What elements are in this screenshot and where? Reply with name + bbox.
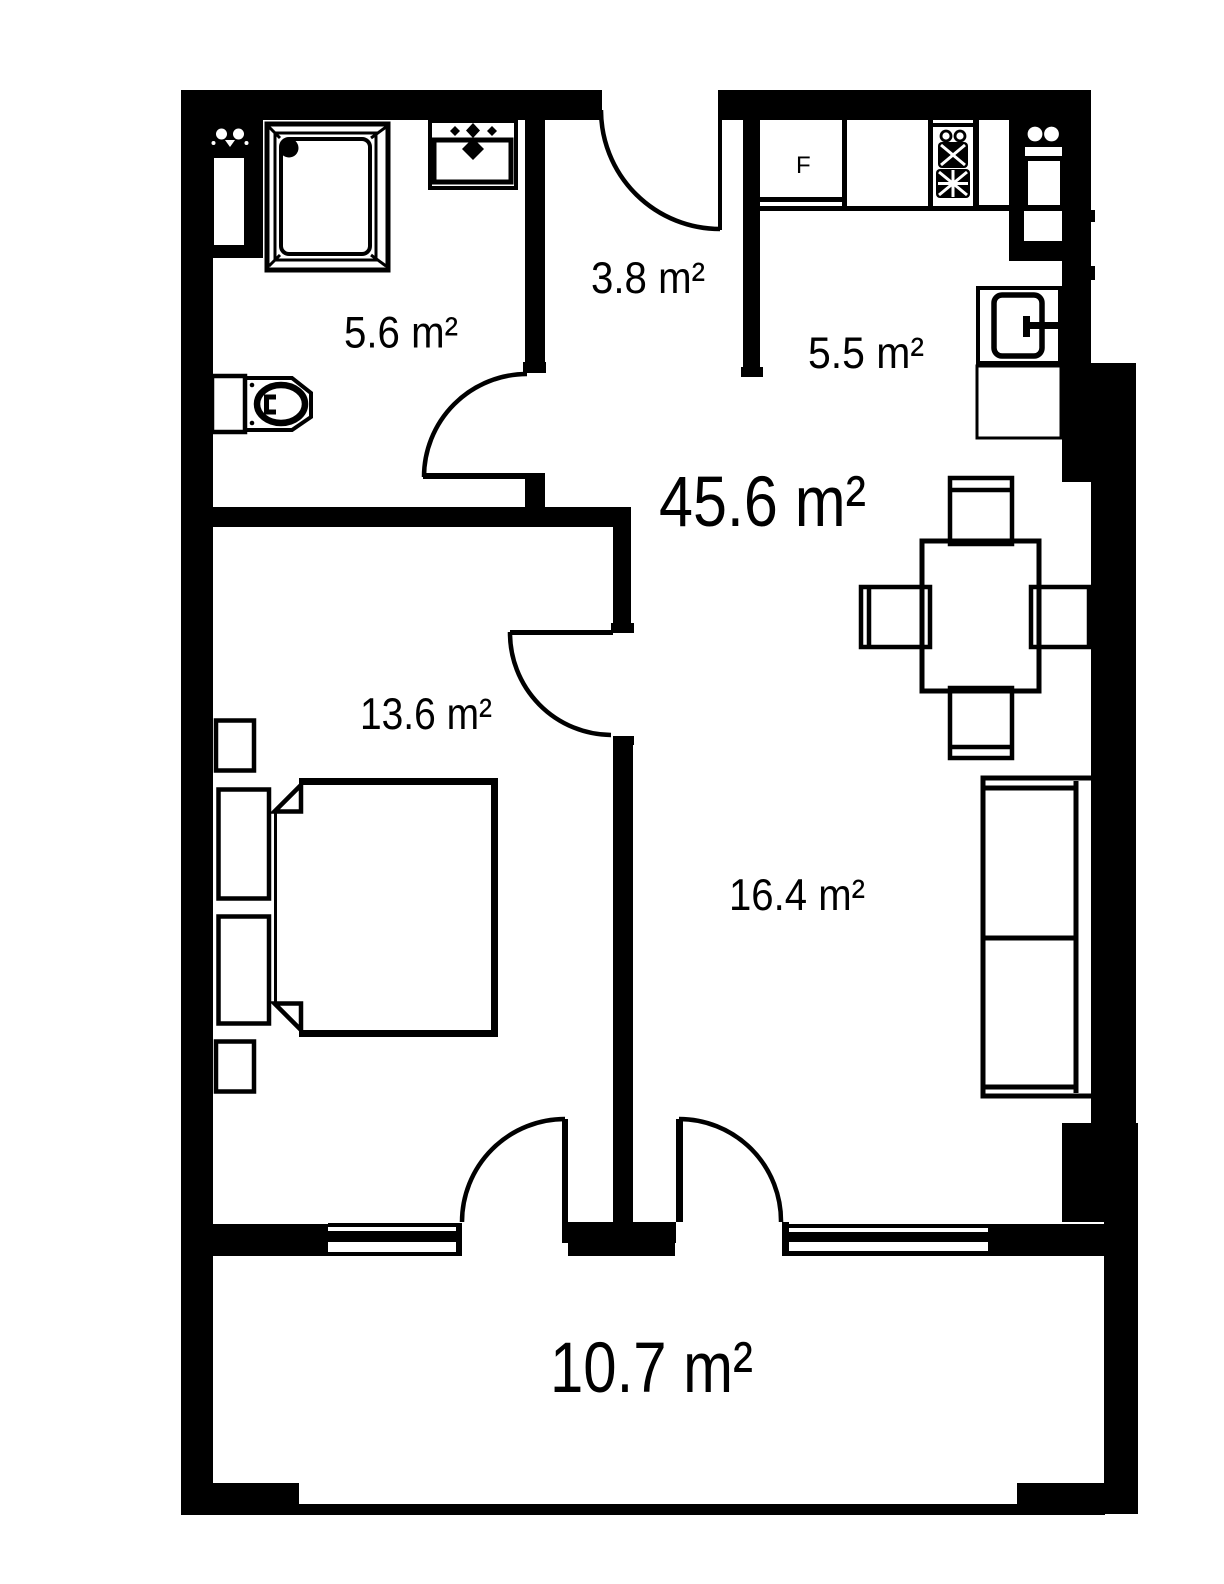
svg-text:5.5 m²: 5.5 m²	[808, 329, 924, 378]
svg-text:5.6 m²: 5.6 m²	[344, 309, 458, 358]
svg-text:45.6 m²: 45.6 m²	[659, 462, 866, 542]
svg-text:13.6 m²: 13.6 m²	[360, 690, 492, 739]
svg-text:16.4 m²: 16.4 m²	[729, 871, 865, 920]
svg-text:F: F	[796, 152, 811, 179]
svg-text:10.7 m²: 10.7 m²	[550, 1328, 753, 1408]
svg-text:3.8 m²: 3.8 m²	[591, 254, 705, 303]
